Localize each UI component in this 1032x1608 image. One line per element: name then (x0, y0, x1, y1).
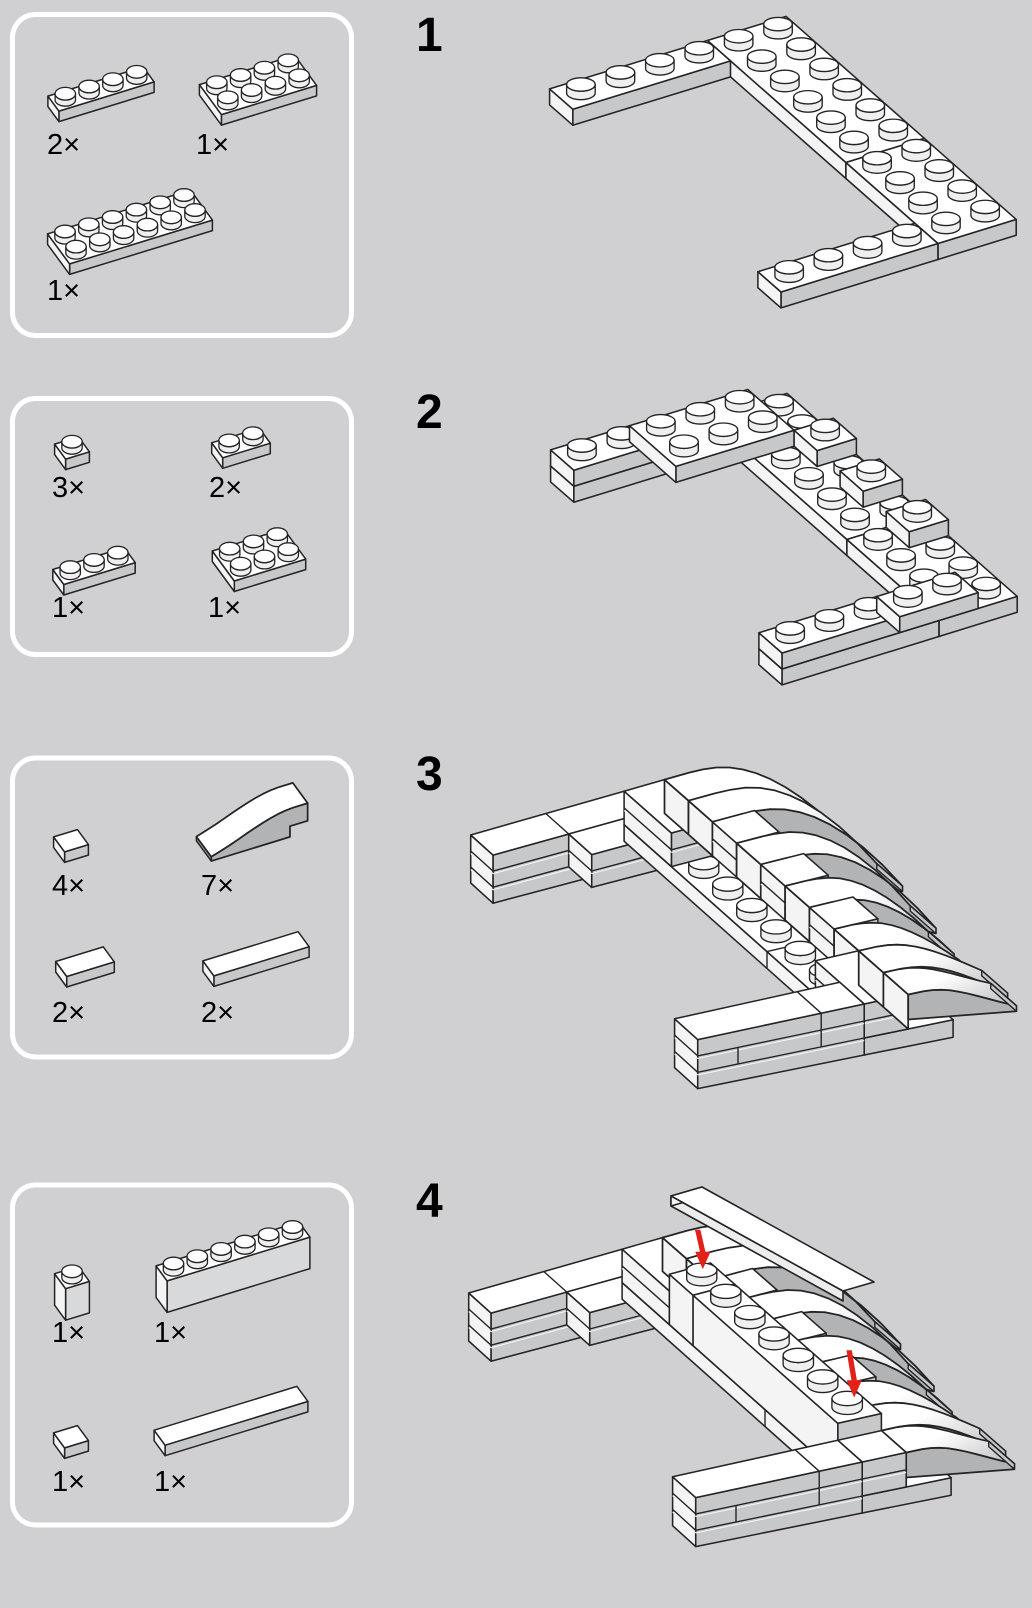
svg-text:1×: 1× (208, 592, 241, 624)
svg-text:1×: 1× (196, 129, 229, 161)
svg-text:7×: 7× (201, 870, 234, 902)
svg-text:1×: 1× (154, 1317, 187, 1349)
svg-text:2×: 2× (47, 129, 80, 161)
svg-text:1: 1 (416, 9, 443, 62)
svg-text:4×: 4× (52, 870, 85, 902)
svg-text:1×: 1× (52, 592, 85, 624)
svg-text:1×: 1× (52, 1466, 85, 1498)
svg-text:2: 2 (416, 386, 443, 439)
svg-text:3: 3 (416, 748, 443, 801)
svg-text:2×: 2× (52, 997, 85, 1029)
svg-text:4: 4 (416, 1175, 443, 1228)
svg-text:1×: 1× (154, 1466, 187, 1498)
svg-text:2×: 2× (209, 472, 242, 504)
svg-text:1×: 1× (52, 1317, 85, 1349)
svg-text:1×: 1× (47, 275, 80, 307)
svg-text:2×: 2× (201, 997, 234, 1029)
svg-text:3×: 3× (52, 472, 85, 504)
